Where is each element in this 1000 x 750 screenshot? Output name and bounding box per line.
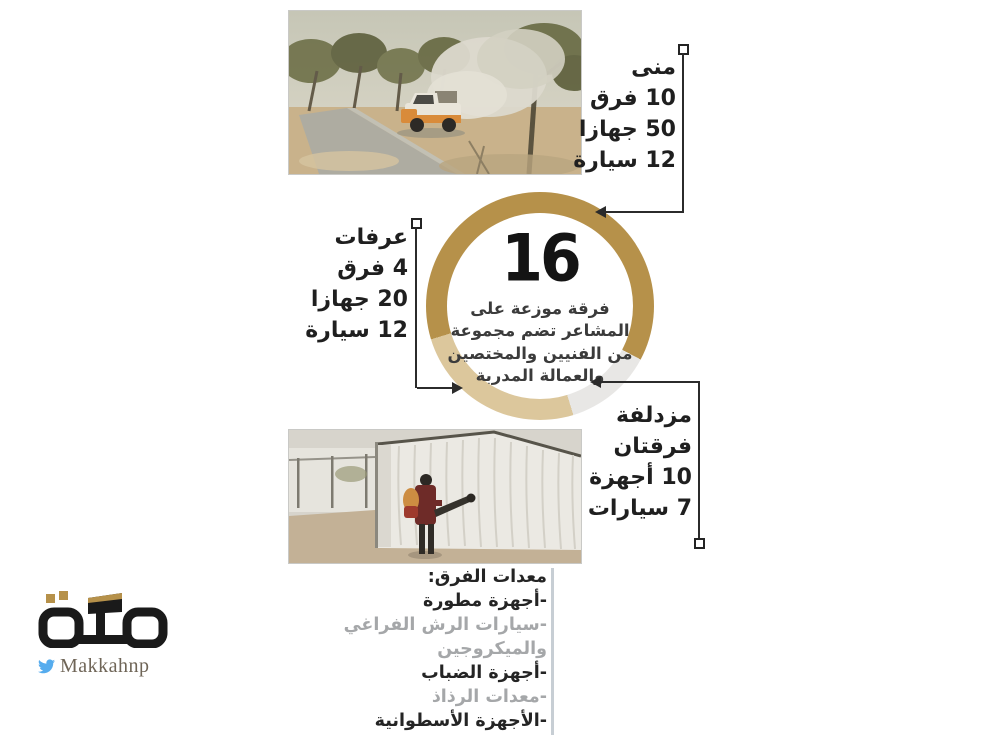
equipment-item: -سيارات الرش الفراغي [270,613,547,637]
worker-leg [428,524,434,554]
mina-stat: 50 جهازا [420,114,676,145]
twitter-handle: Makkahnp [60,655,150,678]
mina-stat: 10 فرق [420,83,676,114]
mina-arrow-icon [595,206,606,218]
kaaba-icon [88,593,122,614]
logo-gold-dot [46,594,55,603]
arafat-stat: 4 فرق [240,253,408,284]
arafat-stat: 20 جهازا [240,284,408,315]
equipment-item: -أجهزة الضباب [270,661,547,685]
mina-stat: 12 سيارة [420,145,676,176]
mina-connector-vline [682,53,684,212]
arafat-block: عرفات 4 فرق 20 جهازا 12 سيارة [240,222,408,346]
makkah-logo-mark [38,586,168,648]
muzdalifah-arrow-icon [590,376,601,388]
arafat-arrow-icon [452,382,463,394]
muzdalifah-connector-marker [694,538,705,549]
muzdalifah-connector-vline [698,381,700,539]
muzdalifah-stat: 7 سيارات [520,493,692,524]
tent-pole [375,442,378,548]
muzdalifah-title: مزدلفة [520,400,692,431]
muzdalifah-block: مزدلفة فرقتان 10 أجهزة 7 سيارات [520,400,692,524]
equipment-item: -معدات الرذاذ [270,685,547,709]
equipment-item: -الأجهزة الأسطوانية [270,709,547,733]
logo-gold-dot [59,591,68,600]
twitter-bird-icon [38,659,55,674]
fogger-backpack [403,488,419,518]
mina-title: منى [420,52,676,83]
infographic-canvas: 16 فرقة موزعة على المشاعر تضم مجموعة من … [0,0,1000,750]
teams-description: فرقة موزعة على المشاعر تضم مجموعة من الف… [448,298,633,387]
teams-total-number: 16 [501,227,579,292]
curtain-opening [378,445,391,547]
arafat-stat: 12 سيارة [240,315,408,346]
twitter-handle-row: Makkahnp [38,655,178,678]
mina-block: منى 10 فرق 50 جهازا 12 سيارة [420,52,676,176]
muzdalifah-stat: 10 أجهزة [520,462,692,493]
mina-connector-hline [604,211,684,213]
equipment-item: والميكروجين [270,637,547,661]
fogger-nozzle [467,494,476,503]
logo-taa-ring [43,612,79,644]
muzdalifah-connector-hline [601,381,700,383]
equipment-list: معدات الفرق: -أجهزة مطورة -سيارات الرش ا… [270,565,547,733]
background-tents [289,448,375,512]
worker-head [420,474,432,486]
equipment-header: معدات الفرق: [270,565,547,589]
equipment-item: -أجهزة مطورة [270,589,547,613]
arafat-title: عرفات [240,222,408,253]
worker-leg [419,524,425,554]
makkah-newspaper-logo: Makkahnp [38,586,178,678]
equipment-divider-line [551,568,554,735]
arafat-connector-vline [415,227,417,388]
logo-kaf-stem [96,610,105,638]
worker-arm [432,500,442,506]
logo-meem-ring [127,612,163,644]
muzdalifah-stat: فرقتان [520,431,692,462]
arafat-connector-hline [417,387,453,389]
